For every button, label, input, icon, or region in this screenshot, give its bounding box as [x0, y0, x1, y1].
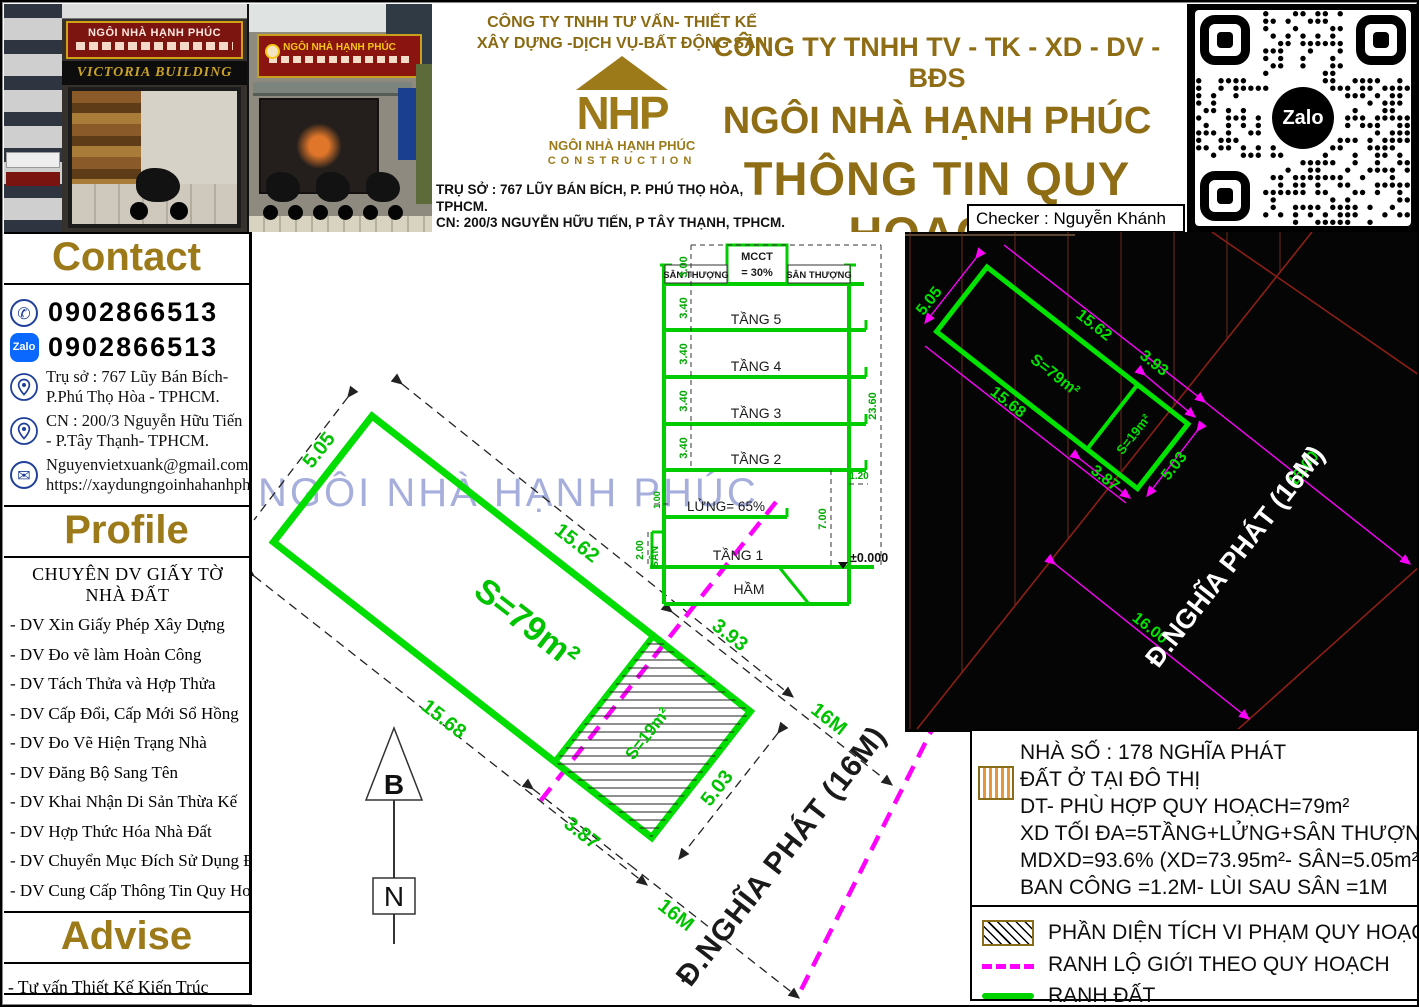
floor4-label: TẦNG 4: [731, 358, 782, 374]
hq-address: TRỤ SỞ : 767 LŨY BÁN BÍCH, P. PHÚ THỌ HÒ…: [436, 182, 786, 215]
floor5-label: TẦNG 5: [731, 311, 782, 327]
legend-label: PHẦN DIỆN TÍCH VI PHẠM QUY HOẠCH: [1048, 921, 1419, 945]
company-name: NGÔI NHÀ HẠNH PHÚC: [687, 100, 1187, 143]
legend: PHẦN DIỆN TÍCH VI PHẠM QUY HOẠCH RANH LỘ…: [972, 907, 1417, 1007]
storefront-interior: [68, 87, 241, 228]
dim-3.40: 3.40: [678, 437, 690, 458]
magenta-dash-swatch-icon: [982, 964, 1034, 969]
branch-address-row: CN : 200/3 Nguyễn Hữu Tiến - P.Tây Thạnh…: [8, 411, 245, 451]
service-item: - DV Hợp Thức Hóa Nhà Đất: [10, 817, 245, 847]
zero-level-label: ±0.000: [850, 551, 888, 565]
phone-number[interactable]: 0902866513: [48, 297, 218, 328]
basement-label: HẦM: [733, 581, 764, 597]
zalo-icon: Zalo: [8, 333, 40, 363]
balcony-line: BAN CÔNG =1.2M- LÙI SAU SÂN =1M: [986, 874, 1411, 901]
sign-subtext: [76, 42, 233, 50]
parked-motorbikes: [261, 168, 411, 220]
plot-area-label: S=79m²: [467, 571, 586, 676]
storefront-photo-2: NGÔI NHÀ HẠNH PHÚC: [249, 4, 432, 232]
sign-subtext: [269, 56, 410, 63]
phone-icon: ✆: [8, 298, 40, 328]
motorbike: [311, 172, 355, 220]
planning-info-panel: NHÀ SỐ : 178 NGHĨA PHÁT ĐẤT Ở TẠI ĐÔ THỊ…: [970, 729, 1419, 1001]
service-item: - DV Đăng Bộ Sang Tên: [10, 758, 245, 788]
max-build-line: XD TỐI ĐA=5TẦNG+LỬNG+SÂN THƯỢNG: [986, 820, 1411, 847]
zalo-row: Zalo 0902866513: [8, 332, 245, 363]
email-row: ✉ Nguyenvietxuank@gmail.com https://xayd…: [8, 455, 245, 495]
email-text[interactable]: Nguyenvietxuank@gmail.com: [46, 455, 287, 475]
company-line: CÔNG TY TNHH TV - TK - XD - DV - BĐS: [687, 32, 1187, 94]
small-red-sign: [6, 172, 60, 186]
watermark-text: NGÔI NHÀ HẠNH PHÚC: [258, 470, 759, 515]
terrace-left-label: SÂN THƯỢNG: [663, 269, 729, 281]
qr-finder-icon: [1356, 15, 1406, 65]
hq-address-row: Trụ sở : 767 Lũy Bán Bích- P.Phú Thọ Hòa…: [8, 367, 245, 407]
dim-3.87: 3.87: [560, 813, 604, 854]
motorbike: [128, 168, 190, 220]
dim-3.93: 3.93: [708, 615, 752, 656]
service-item: - DV Cung Cấp Thông Tin Quy Hoạch: [10, 876, 245, 906]
motorbike: [361, 172, 405, 220]
blue-banner: [398, 88, 418, 160]
land-type-line: ĐẤT Ở TẠI ĐÔ THỊ: [986, 766, 1411, 793]
profile-section-title: Profile: [4, 507, 249, 558]
email-icon: ✉: [8, 460, 40, 490]
sidebar: Contact ✆ 0902866513 Zalo 0902866513 Trụ…: [4, 232, 252, 995]
service-item: - DV Tách Thửa và Hợp Thửa: [10, 669, 245, 699]
service-item: - DV Cấp Đổi, Cấp Mới Sổ Hồng: [10, 699, 245, 729]
zalo-logo-icon: Zalo: [1272, 87, 1334, 149]
area-line: DT- PHÙ HỢP QUY HOẠCH=79m²: [986, 793, 1411, 820]
mcct-line1: MCCT: [741, 251, 773, 263]
dim-2.00: 2.00: [635, 540, 646, 560]
floor1-label: TẦNG 1: [713, 547, 764, 563]
land-type-text: ĐẤT Ở TẠI ĐÔ THỊ: [1020, 768, 1200, 791]
address-band: [62, 4, 247, 19]
san-label: SÂN: [648, 546, 661, 568]
dim-16m: 16M: [654, 895, 698, 936]
dim-3.40: 3.40: [678, 343, 690, 364]
building-elevation: MCCT = 30% SÂN THƯỢNG SÂN THƯỢNG TẦNG 5 …: [635, 245, 888, 604]
dim-3.40: 3.40: [678, 297, 690, 318]
planning-info-lines: NHÀ SỐ : 178 NGHĨA PHÁT ĐẤT Ở TẠI ĐÔ THỊ…: [972, 731, 1417, 907]
dim-15.68: 15.68: [417, 695, 470, 743]
dim-1.00: 1.00: [652, 491, 662, 509]
building-strip: [4, 4, 62, 232]
drawing-canvas: NGÔI NHÀ HẠNH PHÚC: [252, 232, 1419, 1007]
mezzanine-label: LỬNG= 65%: [687, 499, 765, 514]
compass-n-label: N: [384, 881, 404, 912]
legend-label: RANH LỘ GIỚI THEO QUY HOẠCH: [1048, 953, 1390, 977]
dim-3.00: 3.00: [678, 256, 690, 277]
hq-address-text: Trụ sở : 767 Lũy Bán Bích- P.Phú Thọ Hòa…: [46, 367, 245, 407]
house-roof-icon: [576, 56, 668, 90]
branch-address-text: CN : 200/3 Nguyễn Hữu Tiến - P.Tây Thạnh…: [46, 411, 245, 451]
motorbike: [261, 172, 305, 220]
tagline-line1: CÔNG TY TNHH TƯ VẤN- THIẾT KẾ: [452, 12, 792, 33]
dim-1.20: 1.20: [849, 471, 869, 482]
advise-section: - Tư vấn Thiết Kế Kiến Trúc - Tư vấn Xây…: [4, 964, 249, 1007]
terrace-right-label: SÂN THƯỢNG: [786, 269, 852, 281]
house-number-line: NHÀ SỐ : 178 NGHĨA PHÁT: [986, 739, 1411, 766]
small-sign: [6, 152, 60, 168]
legend-violation: PHẦN DIỆN TÍCH VI PHẠM QUY HOẠCH: [982, 920, 1411, 946]
building-name-band: VICTORIA BUILDING: [62, 61, 247, 85]
dim-23.60: 23.60: [867, 392, 879, 420]
dim-3.40: 3.40: [678, 390, 690, 411]
mcct-line2: = 30%: [741, 267, 773, 279]
company-header: CÔNG TY TNHH TƯ VẤN- THIẾT KẾ XÂY DỰNG -…: [432, 4, 1187, 232]
lantern-glow: [296, 123, 342, 169]
shopfront: NGÔI NHÀ HẠNH PHÚC VICTORIA BUILDING: [62, 4, 247, 232]
service-item: - DV Khai Nhận Di Sản Thừa Kế: [10, 787, 245, 817]
location-pin-icon: [8, 416, 40, 446]
hatch-swatch-icon: [982, 920, 1034, 946]
service-item: - DV Đo vẽ làm Hoàn Công: [10, 640, 245, 670]
qr-panel: Zalo: [1187, 4, 1419, 232]
service-item: - DV Chuyển Mục Đích Sử Dụng Đất: [10, 846, 245, 876]
branch-address: CN: 200/3 NGUYỄN HỮU TIẾN, P TÂY THẠNH, …: [436, 215, 786, 232]
qr-finder-icon: [1200, 171, 1250, 221]
wheel: [170, 202, 188, 220]
shop-sign: NGÔI NHÀ HẠNH PHÚC: [257, 34, 422, 78]
profile-heading: CHUYÊN DV GIẤY TỜ NHÀ ĐẤT: [10, 564, 245, 606]
shop-sign-text: NGÔI NHÀ HẠNH PHÚC: [88, 27, 221, 39]
floor2-label: TẦNG 2: [731, 451, 782, 467]
motorbike-body: [136, 168, 180, 202]
zalo-number[interactable]: 0902866513: [48, 332, 218, 363]
checker-box: Checker : Nguyễn Khánh Điền: [967, 204, 1185, 233]
email-and-web: Nguyenvietxuank@gmail.com https://xaydun…: [46, 455, 287, 495]
shop-sign: NGÔI NHÀ HẠNH PHÚC: [66, 21, 243, 59]
legend-road-boundary: RANH LỘ GIỚI THEO QUY HOẠCH: [982, 953, 1411, 977]
wheel: [130, 202, 148, 220]
service-item: - DV Đo Vẽ Hiện Trạng Nhà: [10, 728, 245, 758]
cad-plot-drawing: 5.05 15.62 S=79m² 15.68 3.93 S=19m² 5.03…: [905, 232, 1419, 732]
planning-document: NGÔI NHÀ HẠNH PHÚC VICTORIA BUILDING: [0, 0, 1419, 1007]
advise-item: - Tư vấn Thiết Kế Kiến Trúc: [8, 974, 245, 1000]
green-line-swatch-icon: [982, 993, 1034, 999]
qr-finder-icon: [1200, 15, 1250, 65]
dim-16m: 16M: [807, 699, 851, 740]
contact-section: ✆ 0902866513 Zalo 0902866513 Trụ sở : 76…: [4, 285, 249, 507]
profile-section: CHUYÊN DV GIẤY TỜ NHÀ ĐẤT - DV Xin Giấy …: [4, 558, 249, 913]
website-text[interactable]: https://xaydungngoinhahanhphuc.vn: [46, 475, 287, 495]
compass-b-label: B: [384, 769, 404, 800]
phone-row: ✆ 0902866513: [8, 297, 245, 328]
awning: [253, 82, 412, 96]
legend-land-boundary: RANH ĐẤT: [982, 984, 1411, 1007]
location-pin-icon: [8, 372, 40, 402]
sign-logo: [265, 44, 280, 59]
contact-section-title: Contact: [4, 234, 249, 285]
advise-item: - Tư vấn Xây Dựng nhà ở riêng lẻ: [8, 1000, 245, 1007]
density-line: MDXD=93.6% (XD=73.95m²- SÂN=5.05m²): [986, 847, 1411, 874]
service-item: - DV Xin Giấy Phép Xây Dựng: [10, 610, 245, 640]
legend-label: RANH ĐẤT: [1048, 984, 1155, 1007]
plants: [416, 64, 432, 204]
advise-section-title: Advise: [4, 913, 249, 964]
shop-sign-text: NGÔI NHÀ HẠNH PHÚC: [283, 42, 396, 53]
dim-7.00: 7.00: [817, 508, 829, 529]
floor3-label: TẦNG 3: [731, 405, 782, 421]
storefront-photo-1: NGÔI NHÀ HẠNH PHÚC VICTORIA BUILDING: [4, 4, 247, 232]
storefront-photos: NGÔI NHÀ HẠNH PHÚC VICTORIA BUILDING: [4, 4, 432, 232]
zalo-qr-code: Zalo: [1195, 10, 1411, 226]
